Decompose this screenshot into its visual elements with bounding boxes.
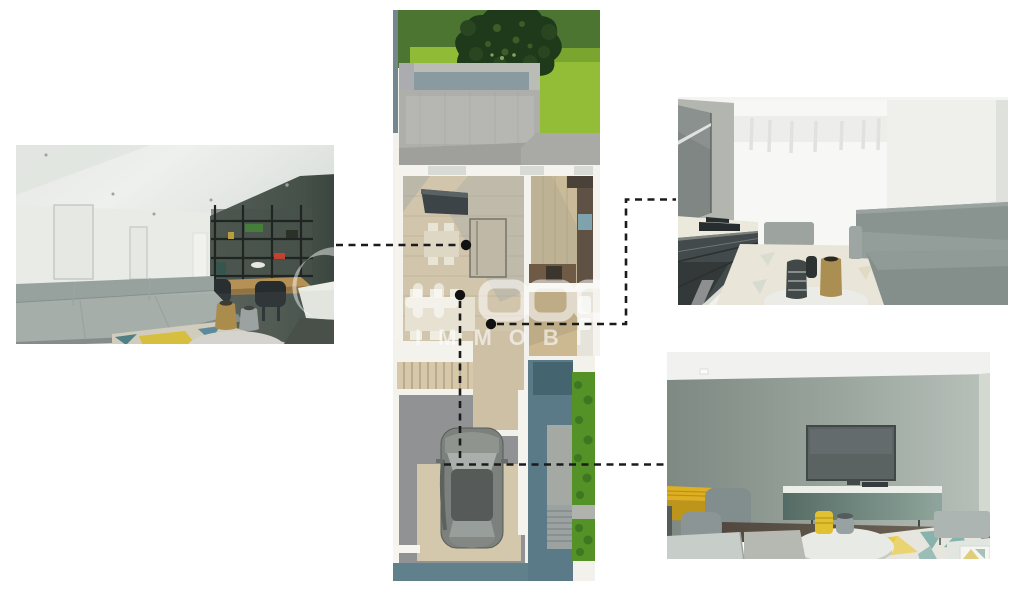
svg-text:IMMOBI: IMMOBI bbox=[415, 325, 599, 350]
